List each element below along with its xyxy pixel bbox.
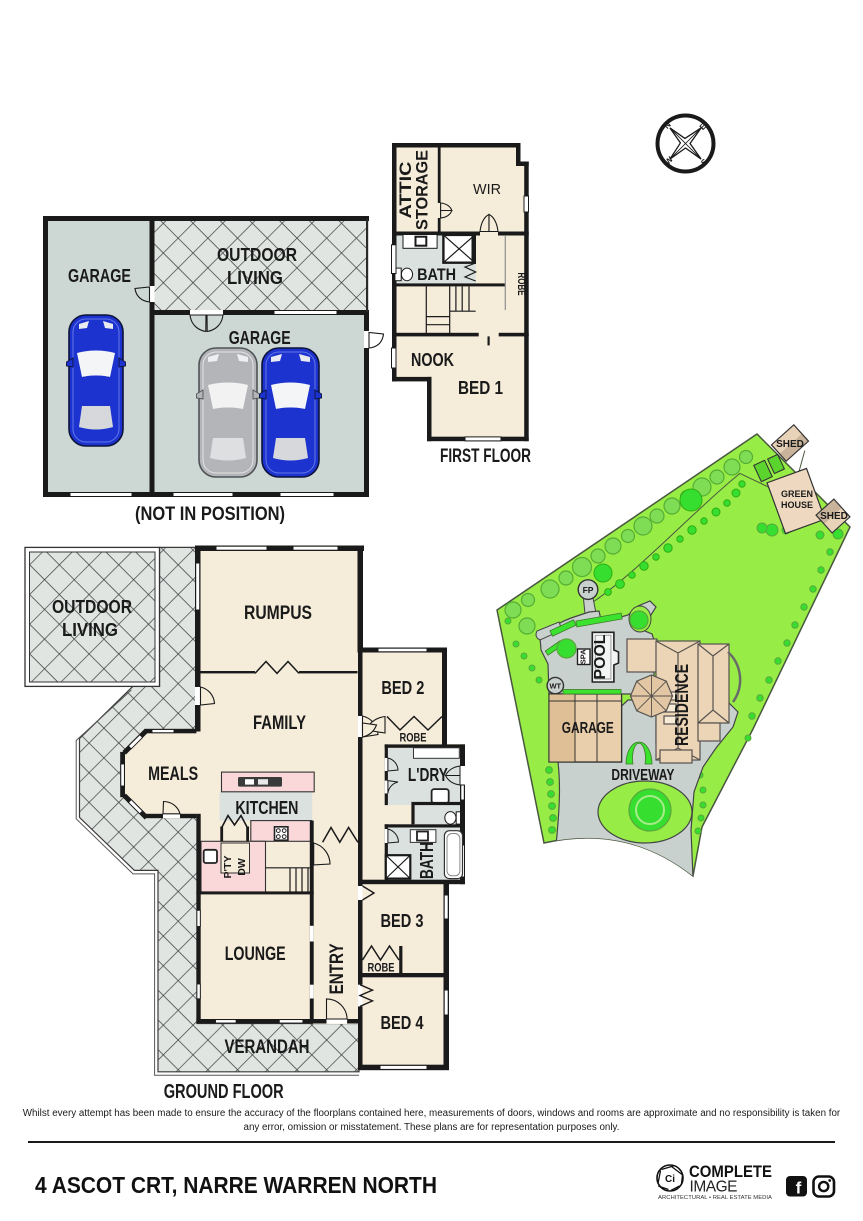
svg-text:FIRST FLOOR: FIRST FLOOR — [440, 446, 531, 467]
svg-text:P'TY: P'TY — [222, 856, 234, 879]
svg-text:ROBE: ROBE — [400, 731, 427, 745]
svg-text:GARAGE: GARAGE — [229, 328, 291, 348]
svg-text:4 ASCOT CRT, NARRE WARREN NORT: 4 ASCOT CRT, NARRE WARREN NORTH — [35, 1172, 437, 1198]
svg-text:ROBE: ROBE — [515, 273, 527, 296]
svg-text:Ci: Ci — [665, 1174, 675, 1185]
svg-text:FP: FP — [583, 585, 594, 595]
svg-text:OUTDOOR: OUTDOOR — [217, 245, 297, 265]
svg-text:BATH: BATH — [417, 842, 437, 879]
svg-text:KITCHEN: KITCHEN — [235, 798, 298, 818]
svg-text:POOL: POOL — [592, 634, 609, 679]
svg-text:FAMILY: FAMILY — [253, 713, 306, 734]
svg-text:VERANDAH: VERANDAH — [225, 1037, 310, 1058]
svg-text:GARAGE: GARAGE — [68, 266, 131, 286]
svg-text:RESIDENCE: RESIDENCE — [672, 664, 692, 746]
svg-text:HOUSE: HOUSE — [781, 500, 813, 510]
svg-text:Whilst every attempt has been: Whilst every attempt has been made to en… — [23, 1108, 841, 1119]
svg-text:LIVING: LIVING — [227, 268, 283, 288]
svg-text:BATH: BATH — [417, 265, 456, 284]
svg-text:MEALS: MEALS — [148, 764, 198, 785]
svg-text:BED 3: BED 3 — [381, 911, 424, 931]
svg-text:WIR: WIR — [473, 181, 501, 198]
svg-text:NOOK: NOOK — [411, 350, 454, 370]
svg-text:GREEN: GREEN — [781, 489, 813, 499]
svg-text:DRIVEWAY: DRIVEWAY — [611, 767, 674, 784]
svg-text:L'DRY: L'DRY — [408, 765, 448, 785]
svg-text:SHED: SHED — [820, 511, 848, 522]
svg-text:IMAGE: IMAGE — [690, 1179, 741, 1196]
svg-text:LOUNGE: LOUNGE — [225, 944, 286, 965]
svg-text:ROBE: ROBE — [368, 961, 395, 975]
svg-text:BED 4: BED 4 — [381, 1013, 424, 1033]
svg-text:GROUND FLOOR: GROUND FLOOR — [164, 1081, 284, 1103]
svg-text:f: f — [796, 1179, 802, 1198]
svg-text:RUMPUS: RUMPUS — [244, 603, 312, 624]
svg-text:DW: DW — [236, 858, 248, 876]
svg-text:any error, omission or misstat: any error, omission or misstatement. The… — [244, 1122, 620, 1133]
svg-text:STORAGE: STORAGE — [413, 150, 432, 230]
svg-text:(NOT IN POSITION): (NOT IN POSITION) — [135, 504, 285, 525]
svg-text:WT: WT — [549, 682, 561, 691]
svg-text:SHED: SHED — [776, 439, 804, 450]
svg-text:SPA: SPA — [579, 649, 588, 664]
svg-text:ARCHITECTURAL • REAL ESTATE ME: ARCHITECTURAL • REAL ESTATE MEDIA — [658, 1195, 772, 1201]
svg-text:OUTDOOR: OUTDOOR — [52, 597, 132, 617]
svg-text:BED 1: BED 1 — [458, 378, 503, 398]
svg-text:BED 2: BED 2 — [381, 678, 424, 698]
svg-text:GARAGE: GARAGE — [562, 720, 614, 737]
svg-text:LIVING: LIVING — [62, 620, 118, 640]
svg-text:ENTRY: ENTRY — [327, 943, 348, 994]
